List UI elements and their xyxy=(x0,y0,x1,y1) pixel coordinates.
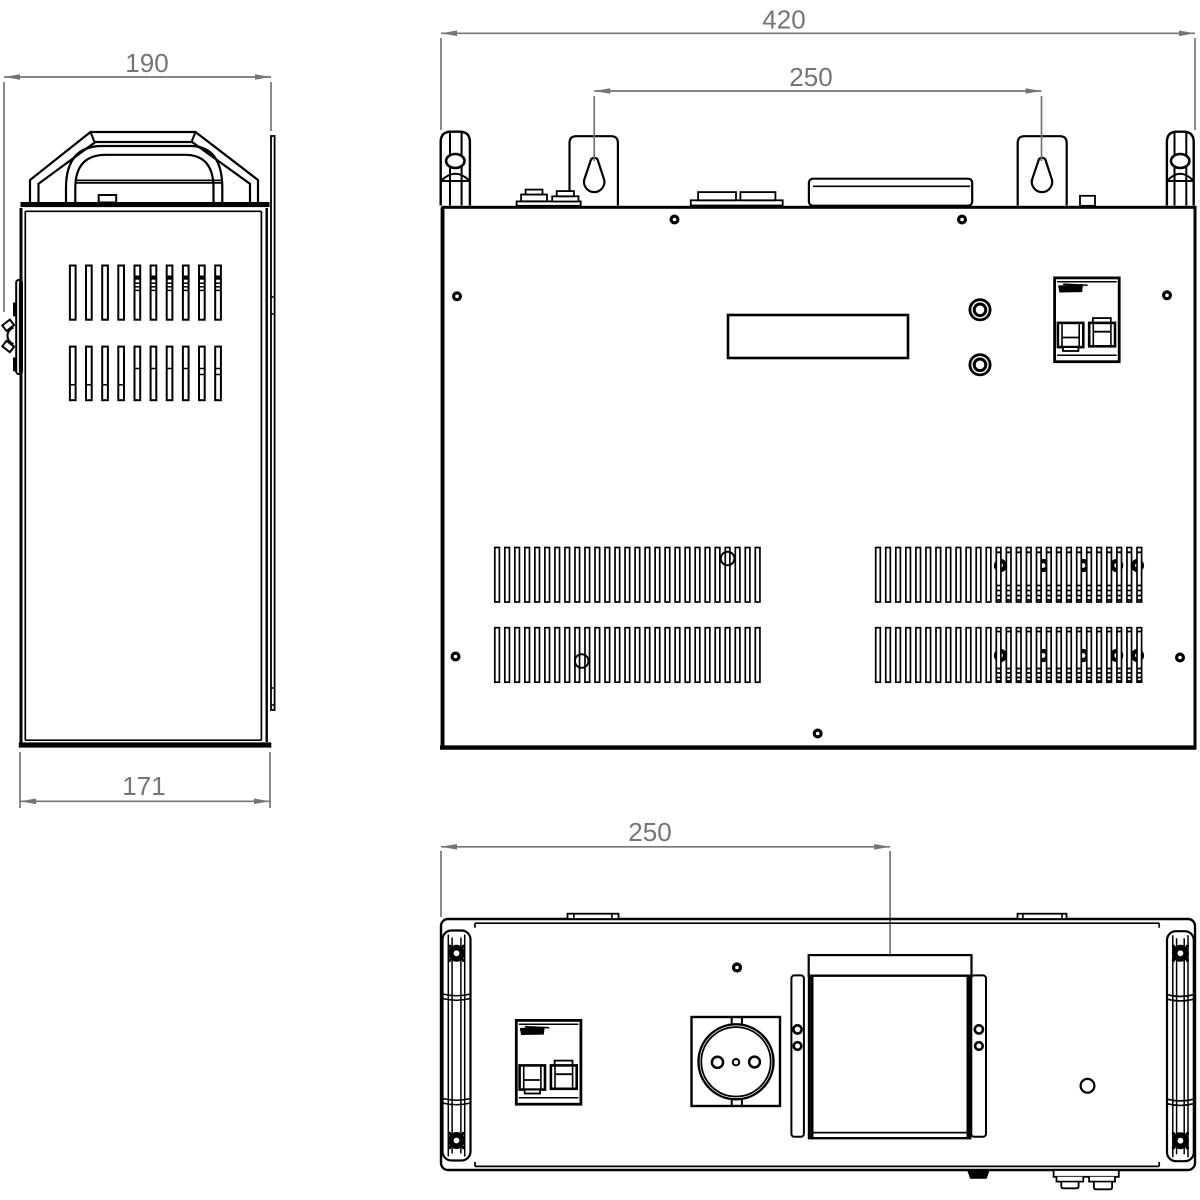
svg-text:171: 171 xyxy=(122,771,165,801)
svg-text:250: 250 xyxy=(628,817,671,847)
svg-text:190: 190 xyxy=(125,48,168,78)
svg-text:420: 420 xyxy=(762,5,805,35)
svg-text:250: 250 xyxy=(789,62,832,92)
